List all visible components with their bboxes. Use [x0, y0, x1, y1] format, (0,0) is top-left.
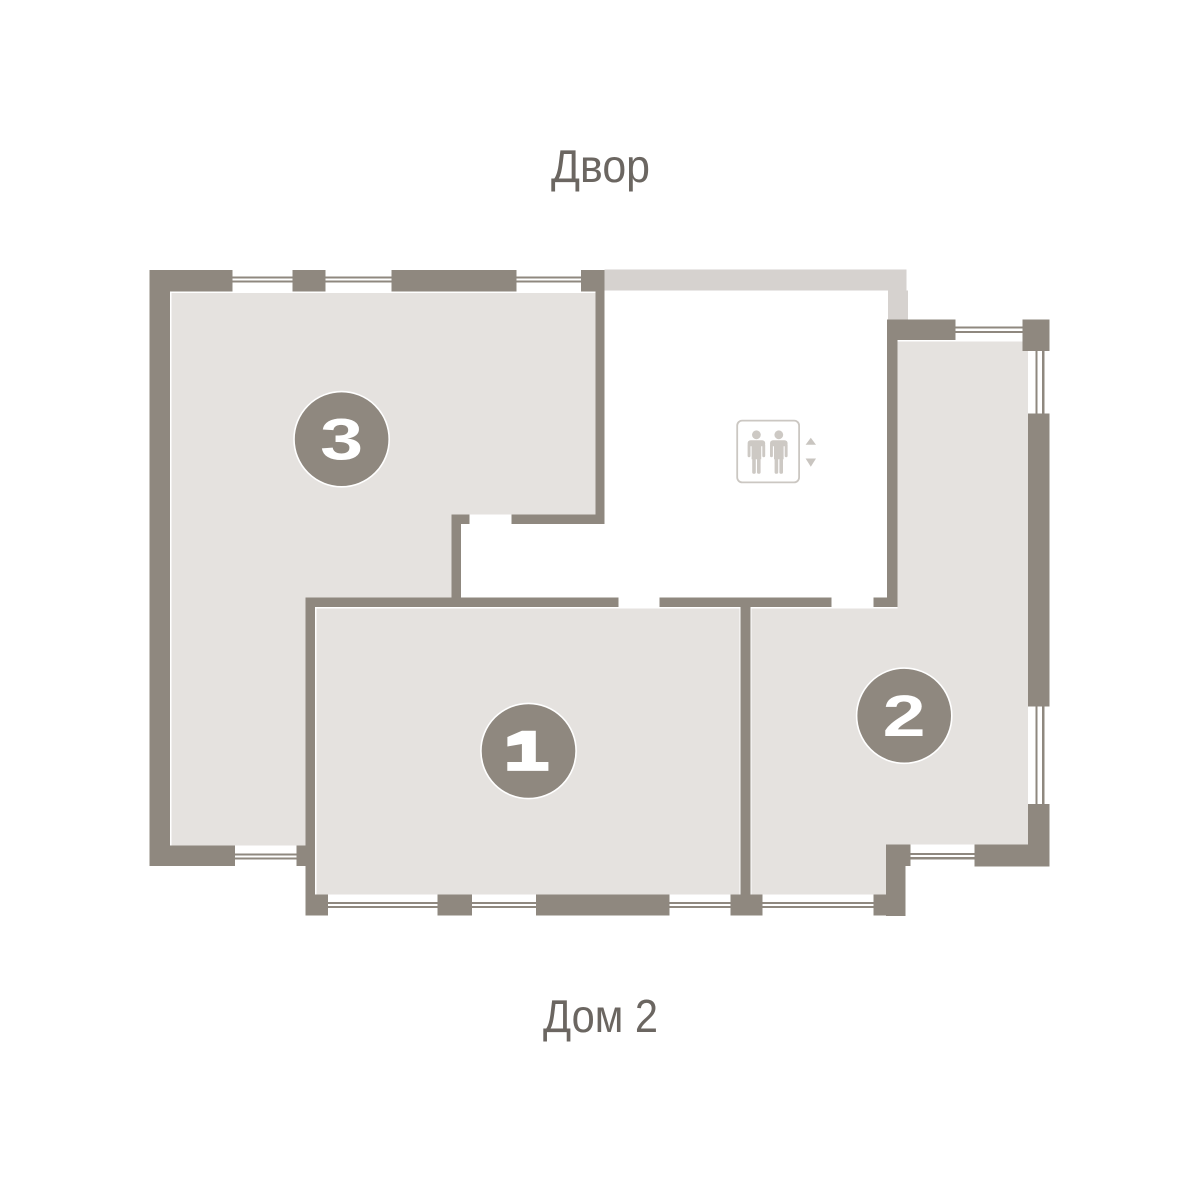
- svg-text:Дом 2: Дом 2: [543, 990, 658, 1042]
- svg-text:3: 3: [320, 408, 363, 473]
- svg-text:2: 2: [883, 684, 926, 749]
- svg-text:Двор: Двор: [551, 140, 650, 192]
